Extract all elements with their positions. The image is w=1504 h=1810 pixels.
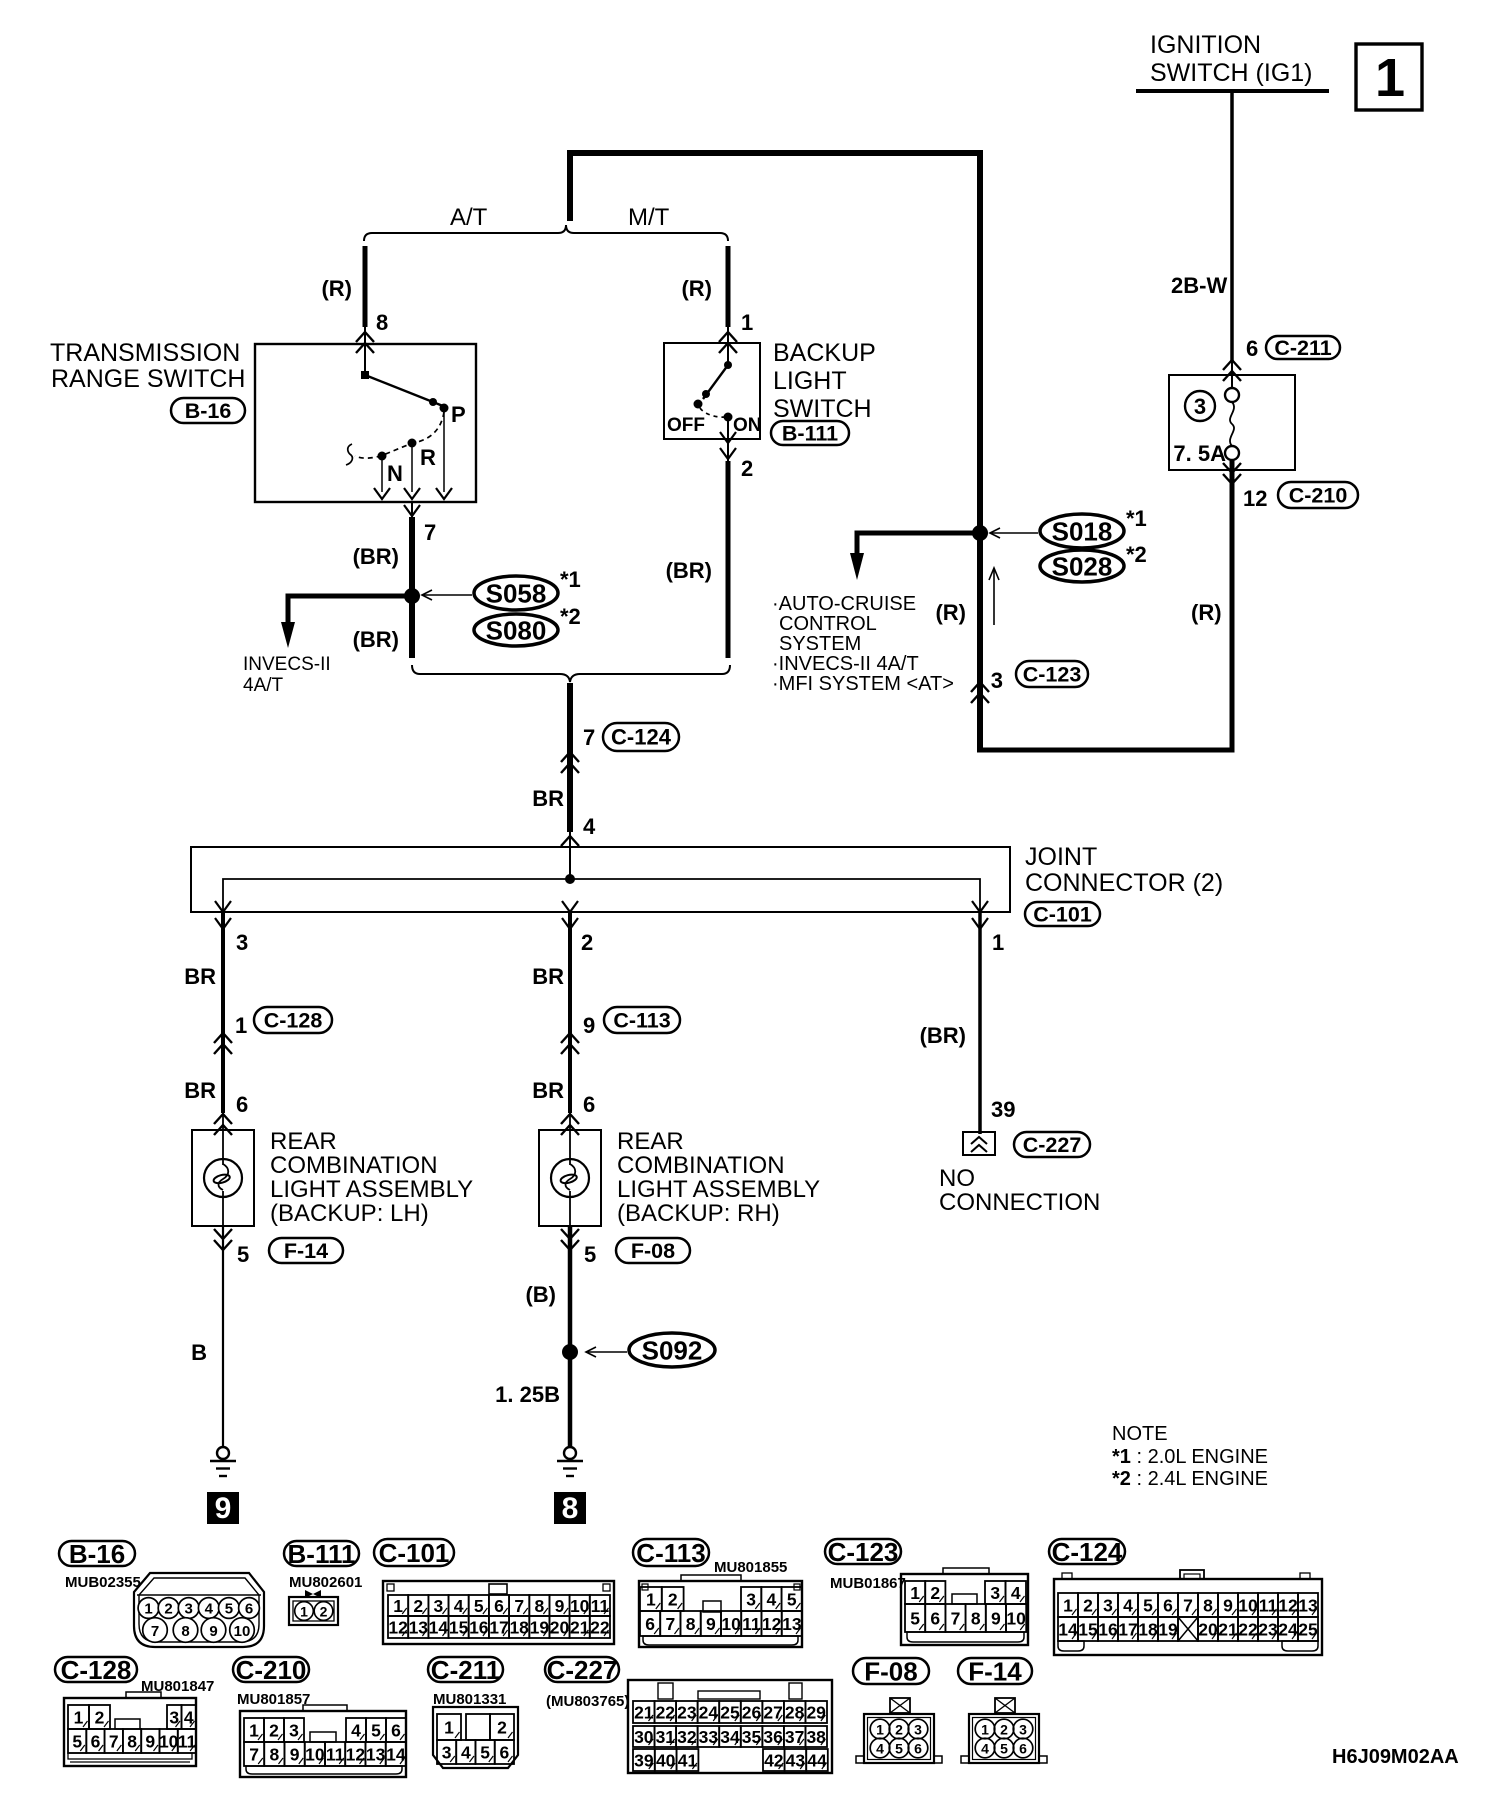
svg-text:LIGHT: LIGHT [773,367,847,395]
svg-text:2: 2 [581,930,593,955]
svg-text:H6J09M02AA: H6J09M02AA [1332,1746,1459,1768]
svg-text:37: 37 [785,1727,804,1747]
svg-text:2: 2 [1000,1722,1008,1738]
svg-text:8: 8 [270,1744,280,1764]
svg-text:16: 16 [1098,1619,1118,1639]
svg-text:7: 7 [424,520,436,545]
svg-text:5: 5 [910,1608,920,1628]
svg-text:5: 5 [584,1242,596,1267]
svg-text:CONNECTION: CONNECTION [939,1189,1100,1216]
svg-text:7: 7 [109,1731,119,1751]
svg-text:28: 28 [785,1702,805,1722]
svg-text:32: 32 [677,1727,697,1747]
svg-text:S018: S018 [1052,516,1113,546]
svg-text:13: 13 [1298,1595,1318,1615]
svg-text:LIGHT ASSEMBLY: LIGHT ASSEMBLY [270,1176,473,1203]
svg-text:6: 6 [914,1741,922,1757]
svg-text:(MU803765): (MU803765) [546,1693,629,1710]
svg-text:3: 3 [236,930,248,955]
svg-text:7: 7 [951,1608,961,1628]
svg-text:4: 4 [205,1601,214,1618]
svg-text:4: 4 [981,1741,989,1757]
svg-text:R: R [420,445,436,470]
svg-text:43: 43 [786,1750,806,1770]
svg-text:6: 6 [391,1720,401,1740]
svg-text:S080: S080 [486,615,547,645]
svg-text:(R): (R) [321,276,352,301]
svg-text:SWITCH: SWITCH [773,395,872,423]
svg-text:1: 1 [981,1722,989,1738]
svg-text:(BR): (BR) [353,627,399,652]
svg-text:6: 6 [91,1731,101,1751]
svg-text:3: 3 [185,1601,193,1618]
svg-text:23: 23 [1258,1619,1278,1639]
svg-text:8: 8 [127,1731,137,1751]
svg-text:21: 21 [570,1617,590,1637]
svg-text:6: 6 [930,1608,940,1628]
svg-text:30: 30 [634,1727,654,1747]
svg-text:COMBINATION: COMBINATION [617,1152,785,1179]
svg-text:C-210: C-210 [1289,483,1348,507]
svg-text:29: 29 [806,1702,826,1722]
svg-text:4: 4 [767,1589,777,1609]
svg-text:·INVECS-II 4A/T: ·INVECS-II 4A/T [772,653,919,675]
svg-text:C-227: C-227 [1023,1133,1082,1157]
svg-text:6: 6 [645,1614,655,1634]
svg-text:BR: BR [532,786,564,811]
svg-text:1: 1 [741,310,753,335]
svg-text:SYSTEM: SYSTEM [779,633,861,655]
svg-text:MUB01867: MUB01867 [830,1575,906,1592]
svg-text:4: 4 [1123,1595,1133,1615]
svg-text:*2: *2 [560,604,581,629]
svg-text:NOTE: NOTE [1112,1423,1168,1445]
svg-text:MU802601: MU802601 [289,1574,362,1591]
svg-text:16: 16 [469,1617,489,1637]
svg-text:MU801331: MU801331 [433,1691,506,1708]
svg-text:IGNITION: IGNITION [1150,31,1261,59]
svg-text:6: 6 [1019,1741,1027,1757]
svg-text:BR: BR [532,964,564,989]
svg-text:23: 23 [677,1702,697,1722]
svg-text:10: 10 [1238,1595,1258,1615]
svg-text:(BR): (BR) [353,544,399,569]
svg-text:4: 4 [1011,1583,1021,1603]
svg-text:MUB02355: MUB02355 [65,1574,141,1591]
svg-text:31: 31 [656,1727,676,1747]
svg-text:B-16: B-16 [69,1539,125,1569]
svg-text:7: 7 [583,725,595,750]
svg-text:MU801857: MU801857 [237,1691,310,1708]
svg-text:33: 33 [699,1727,719,1747]
svg-text:2B-W: 2B-W [1171,273,1227,298]
svg-text:B-111: B-111 [782,421,838,445]
svg-text:9: 9 [555,1596,565,1616]
svg-text:S058: S058 [486,578,547,608]
svg-text:7: 7 [249,1744,259,1764]
svg-text:5: 5 [72,1731,82,1751]
svg-text:1. 25B: 1. 25B [495,1382,560,1407]
svg-text:(BR): (BR) [666,558,712,583]
svg-text:36: 36 [763,1727,783,1747]
svg-text:S028: S028 [1052,551,1113,581]
svg-text:39: 39 [634,1750,654,1770]
svg-text:21: 21 [634,1702,654,1722]
svg-text:5: 5 [1143,1595,1153,1615]
svg-text:(B): (B) [525,1282,556,1307]
svg-text:5: 5 [371,1720,381,1740]
svg-text:3: 3 [1103,1595,1113,1615]
svg-text:3: 3 [1194,394,1206,419]
svg-text:C-113: C-113 [613,1008,670,1032]
svg-text:TRANSMISSION: TRANSMISSION [50,339,240,367]
svg-text:20: 20 [550,1617,570,1637]
svg-text:BR: BR [184,1078,216,1103]
svg-text:RANGE SWITCH: RANGE SWITCH [51,365,245,393]
svg-text:MU801855: MU801855 [714,1559,787,1576]
svg-text:27: 27 [763,1702,782,1722]
svg-text:1: 1 [444,1717,454,1737]
svg-text:8: 8 [535,1596,545,1616]
svg-text:1: 1 [910,1583,920,1603]
svg-text:1: 1 [646,1589,656,1609]
svg-text:17: 17 [489,1617,508,1637]
svg-text:22: 22 [656,1702,676,1722]
svg-text:2: 2 [895,1722,903,1738]
svg-text:5: 5 [474,1596,484,1616]
svg-text:C-211: C-211 [1274,336,1331,360]
svg-text:2: 2 [930,1583,940,1603]
svg-text:COMBINATION: COMBINATION [270,1152,438,1179]
svg-text:17: 17 [1118,1619,1137,1639]
svg-text:C-123: C-123 [1023,662,1082,686]
svg-text:3: 3 [289,1720,299,1740]
svg-text:9: 9 [215,1492,232,1525]
svg-text:6: 6 [500,1742,510,1762]
svg-text:·MFI SYSTEM <AT>: ·MFI SYSTEM <AT> [772,673,954,695]
svg-text:10: 10 [159,1731,179,1751]
svg-text:M/T: M/T [628,204,670,231]
svg-text:5: 5 [1000,1741,1008,1757]
svg-text:8: 8 [562,1492,579,1525]
svg-text:39: 39 [991,1097,1015,1122]
svg-text:12: 12 [346,1744,366,1764]
svg-text:F-08: F-08 [864,1656,917,1686]
svg-text:7: 7 [514,1596,524,1616]
svg-text:2: 2 [497,1717,507,1737]
svg-text:3: 3 [442,1742,452,1762]
svg-text:40: 40 [656,1750,676,1770]
svg-text:C-124: C-124 [611,724,672,749]
svg-text:CONTROL: CONTROL [779,613,877,635]
svg-text:1: 1 [235,1013,247,1038]
svg-text:F-14: F-14 [284,1239,328,1263]
svg-text:LIGHT ASSEMBLY: LIGHT ASSEMBLY [617,1176,820,1203]
svg-text:12: 12 [1243,486,1267,511]
svg-text:5: 5 [787,1589,797,1609]
svg-text:1: 1 [74,1707,84,1727]
svg-text:14: 14 [429,1617,449,1637]
svg-text:*1: *1 [1126,506,1147,531]
svg-text:B-16: B-16 [185,399,232,423]
svg-text:1: 1 [876,1722,884,1738]
svg-text:12: 12 [1278,1595,1298,1615]
svg-text:4: 4 [454,1596,464,1616]
svg-text:9: 9 [145,1731,155,1751]
svg-text:2: 2 [1083,1595,1093,1615]
svg-text:6: 6 [245,1601,253,1618]
svg-text:22: 22 [1238,1619,1258,1639]
svg-text:C-124: C-124 [1052,1537,1123,1567]
svg-text:2: 2 [668,1589,678,1609]
svg-text:7: 7 [151,1623,159,1640]
svg-text:(R): (R) [681,276,712,301]
svg-text:10: 10 [570,1596,590,1616]
svg-text:INVECS-II: INVECS-II [243,654,331,675]
svg-text:24: 24 [1278,1619,1298,1639]
svg-text:8: 8 [686,1614,696,1634]
svg-text:3: 3 [746,1589,756,1609]
svg-text:9: 9 [290,1744,300,1764]
svg-text:6: 6 [583,1092,595,1117]
svg-text:4: 4 [876,1741,884,1757]
svg-text:SWITCH (IG1): SWITCH (IG1) [1150,59,1313,87]
svg-text:BR: BR [184,964,216,989]
svg-text:21: 21 [1218,1619,1238,1639]
svg-text:4: 4 [351,1720,361,1740]
svg-text:(R): (R) [1191,600,1222,625]
svg-text:C-210: C-210 [236,1655,307,1685]
svg-text:C-211: C-211 [431,1655,500,1685]
svg-text:2: 2 [269,1720,279,1740]
svg-text:8: 8 [971,1608,981,1628]
svg-text:*2 : 2.4L ENGINE: *2 : 2.4L ENGINE [1112,1468,1268,1490]
svg-text:8: 8 [181,1623,189,1640]
svg-text:1: 1 [1375,48,1405,108]
svg-text:7. 5A: 7. 5A [1173,441,1226,466]
svg-text:(BACKUP: LH): (BACKUP: LH) [270,1200,429,1227]
svg-text:22: 22 [590,1617,610,1637]
svg-text:B-111: B-111 [288,1539,356,1569]
svg-text:·AUTO-CRUISE: ·AUTO-CRUISE [772,593,916,615]
svg-text:6: 6 [1163,1595,1173,1615]
svg-text:42: 42 [764,1750,784,1770]
svg-text:15: 15 [1078,1619,1098,1639]
svg-text:N: N [387,461,403,486]
svg-text:19: 19 [530,1617,550,1637]
svg-text:13: 13 [409,1617,429,1637]
svg-text:8: 8 [1203,1595,1213,1615]
svg-text:4: 4 [583,814,596,839]
svg-text:3: 3 [990,1583,1000,1603]
svg-text:(BR): (BR) [920,1023,966,1048]
svg-text:1: 1 [249,1720,259,1740]
svg-text:9: 9 [209,1623,217,1640]
svg-text:1: 1 [992,930,1004,955]
svg-text:12: 12 [388,1617,408,1637]
svg-text:7: 7 [666,1614,676,1634]
svg-text:9: 9 [1223,1595,1233,1615]
svg-text:2: 2 [320,1604,328,1620]
svg-text:6: 6 [236,1092,248,1117]
svg-text:2: 2 [95,1707,105,1727]
svg-text:3: 3 [1019,1722,1027,1738]
svg-text:REAR: REAR [270,1128,337,1155]
svg-text:1: 1 [393,1596,403,1616]
svg-text:F-08: F-08 [631,1239,675,1263]
svg-text:41: 41 [678,1750,698,1770]
svg-text:8: 8 [376,310,388,335]
svg-text:6: 6 [494,1596,504,1616]
svg-text:C-101: C-101 [1033,902,1092,926]
svg-text:15: 15 [449,1617,469,1637]
svg-text:C-128: C-128 [264,1008,323,1032]
svg-text:5: 5 [480,1742,490,1762]
svg-text:24: 24 [699,1702,719,1722]
svg-text:2: 2 [741,456,753,481]
svg-text:(R): (R) [935,600,966,625]
svg-text:*2: *2 [1126,542,1147,567]
svg-text:NO: NO [939,1165,975,1192]
svg-text:C-123: C-123 [828,1537,899,1567]
svg-text:*1 : 2.0L ENGINE: *1 : 2.0L ENGINE [1112,1446,1268,1468]
svg-text:5: 5 [225,1601,233,1618]
svg-text:C-113: C-113 [636,1538,705,1568]
svg-text:C-227: C-227 [547,1655,618,1685]
svg-text:5: 5 [237,1242,249,1267]
svg-text:25: 25 [1298,1619,1318,1639]
svg-text:25: 25 [720,1702,740,1722]
svg-text:18: 18 [1138,1619,1158,1639]
svg-text:3: 3 [991,668,1003,693]
svg-text:2: 2 [413,1596,423,1616]
svg-text:10: 10 [234,1623,251,1640]
svg-text:P: P [451,402,466,427]
svg-text:14: 14 [386,1744,406,1764]
svg-text:11: 11 [591,1596,610,1616]
svg-text:20: 20 [1198,1619,1218,1639]
svg-text:1: 1 [300,1604,308,1620]
svg-text:C-128: C-128 [61,1655,132,1685]
svg-text:14: 14 [1058,1619,1078,1639]
svg-text:4A/T: 4A/T [243,675,284,696]
svg-text:*1: *1 [560,567,581,592]
svg-text:(BACKUP: RH): (BACKUP: RH) [617,1200,780,1227]
svg-text:10: 10 [305,1744,325,1764]
svg-text:B: B [191,1340,207,1365]
svg-text:9: 9 [583,1013,595,1038]
svg-text:2: 2 [164,1601,172,1618]
svg-text:9: 9 [991,1608,1001,1628]
svg-text:BR: BR [532,1078,564,1103]
svg-text:JOINT: JOINT [1025,843,1097,871]
svg-text:18: 18 [509,1617,529,1637]
svg-text:ON: ON [733,415,762,436]
svg-text:19: 19 [1158,1619,1178,1639]
svg-text:A/T: A/T [450,204,488,231]
svg-text:C-101: C-101 [379,1538,450,1568]
svg-text:35: 35 [742,1727,762,1747]
svg-text:1: 1 [144,1601,152,1618]
svg-text:1: 1 [1063,1595,1073,1615]
svg-text:5: 5 [895,1741,903,1757]
svg-text:7: 7 [1183,1595,1193,1615]
svg-text:38: 38 [806,1727,826,1747]
svg-text:BACKUP: BACKUP [773,339,876,367]
svg-text:44: 44 [807,1750,827,1770]
svg-text:F-14: F-14 [968,1656,1022,1686]
svg-text:34: 34 [720,1727,740,1747]
svg-text:11: 11 [178,1731,197,1751]
svg-text:CONNECTOR (2): CONNECTOR (2) [1025,869,1223,897]
svg-text:6: 6 [1246,336,1258,361]
svg-text:S092: S092 [642,1335,703,1365]
svg-text:9: 9 [706,1614,716,1634]
svg-text:4: 4 [461,1742,471,1762]
svg-text:26: 26 [742,1702,762,1722]
svg-text:OFF: OFF [667,415,705,436]
svg-text:REAR: REAR [617,1128,684,1155]
svg-text:3: 3 [434,1596,444,1616]
svg-text:3: 3 [914,1722,922,1738]
svg-text:13: 13 [366,1744,386,1764]
